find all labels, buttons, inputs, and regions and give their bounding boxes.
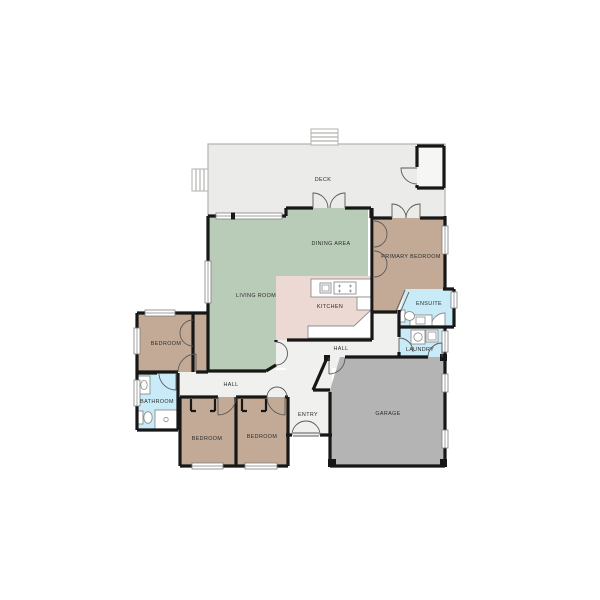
window-pier [231,213,235,220]
entry-floor [286,356,332,436]
label-laundry: LAUNDRY [406,347,434,353]
label-garage: GARAGE [375,411,400,417]
label-bedroom-right: BEDROOM [247,434,278,440]
closet-right-floor [242,399,266,411]
label-living: LIVING ROOM [236,293,276,299]
kitchen-cooktop [334,282,356,294]
label-entry: ENTRY [298,412,318,418]
bathroom-toilet [138,411,143,424]
floor-plan-svg: DECK DINING AREA LIVING ROOM KITCHEN PRI… [0,0,600,600]
closet-mid-floor [191,399,215,411]
label-bedroom-mid: BEDROOM [192,436,223,442]
label-dining: DINING AREA [312,241,351,247]
label-ensuite: ENSUITE [416,301,442,307]
floor-plan-image: DECK DINING AREA LIVING ROOM KITCHEN PRI… [0,0,600,600]
label-primary-bedroom: PRIMARY BEDROOM [381,254,441,260]
deck-stairs-top [311,129,338,145]
deck-storage-floor [417,146,444,188]
deck-stairs-left [192,169,208,191]
kitchen-fridge [357,297,371,310]
label-hall-upper: HALL [333,346,348,352]
room-fills [137,144,454,466]
corridor-floor [372,312,401,358]
laundry-washer [411,330,425,344]
label-bedroom-left: BEDROOM [151,341,182,347]
label-hall-lower: HALL [223,382,238,388]
label-bathroom: BATHROOM [140,399,174,405]
laundry-fixtures [411,330,438,344]
label-kitchen: KITCHEN [317,304,343,310]
label-deck: DECK [315,177,332,183]
bathroom-shower [155,410,177,429]
